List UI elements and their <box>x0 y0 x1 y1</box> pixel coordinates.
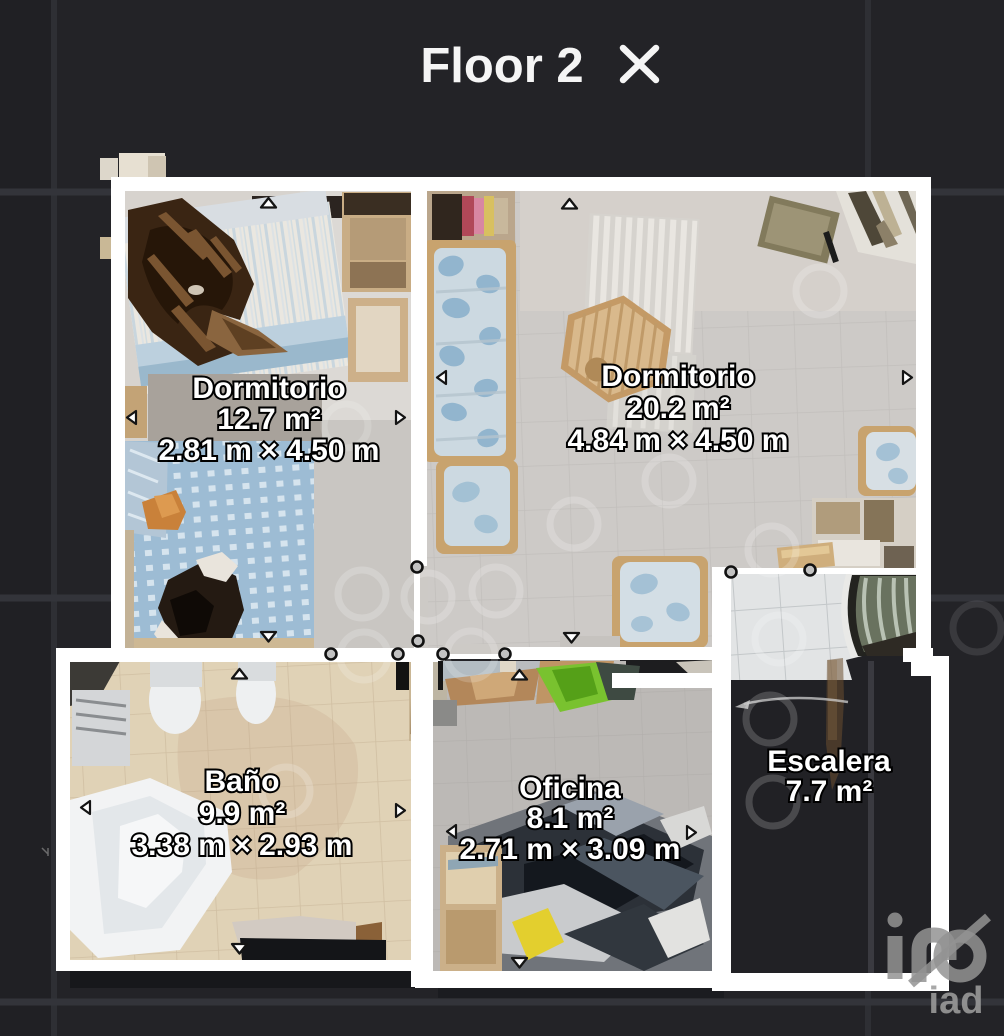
svg-text:Escalera: Escalera <box>767 745 891 778</box>
svg-text:Baño: Baño <box>205 765 280 798</box>
svg-text:2.71 m × 3.09 m: 2.71 m × 3.09 m <box>460 833 681 866</box>
svg-text:8.1 m²: 8.1 m² <box>527 802 614 835</box>
svg-text:20.2 m²: 20.2 m² <box>626 392 729 425</box>
svg-text:iad: iad <box>929 980 984 1022</box>
svg-text:Oficina: Oficina <box>519 772 621 805</box>
svg-text:4.84 m × 4.50 m: 4.84 m × 4.50 m <box>568 424 789 457</box>
svg-text:2.81 m × 4.50 m: 2.81 m × 4.50 m <box>159 434 380 467</box>
svg-text:9.9 m²: 9.9 m² <box>199 797 286 830</box>
svg-text:Dormitorio: Dormitorio <box>601 360 754 393</box>
svg-text:Floor 2: Floor 2 <box>420 39 583 93</box>
svg-text:3.38 m × 2.93 m: 3.38 m × 2.93 m <box>132 829 353 862</box>
svg-text:12.7 m²: 12.7 m² <box>217 403 320 436</box>
svg-text:7.7 m²: 7.7 m² <box>786 775 873 808</box>
svg-text:Dormitorio: Dormitorio <box>192 372 345 405</box>
